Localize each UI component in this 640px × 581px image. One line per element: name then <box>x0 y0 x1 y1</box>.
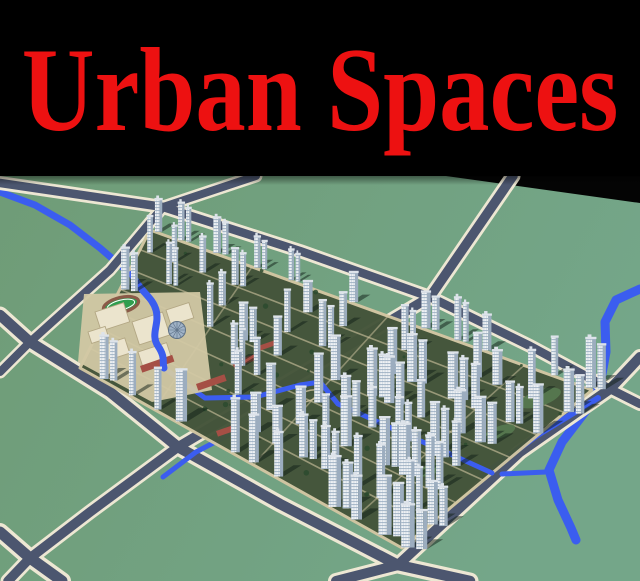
canal-layer <box>502 472 546 474</box>
page: Urban Spaces <box>0 0 640 581</box>
page-title: Urban Spaces <box>22 30 618 150</box>
title-banner: Urban Spaces <box>0 0 640 176</box>
banner-shade <box>0 176 640 185</box>
